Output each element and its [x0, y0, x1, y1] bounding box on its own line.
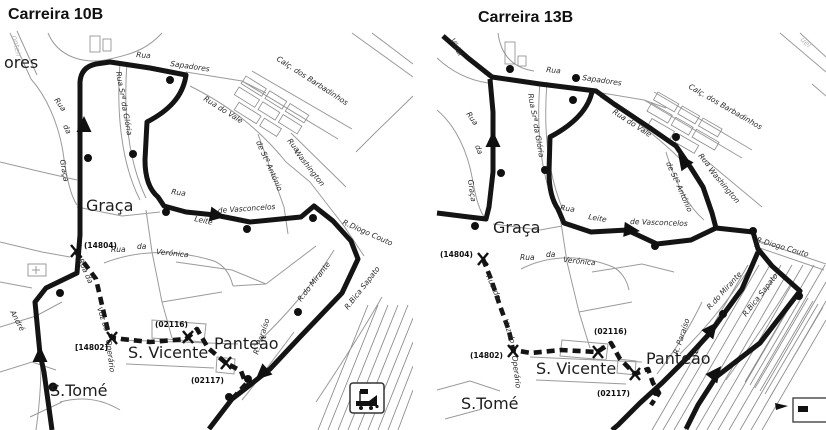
stop-dot [162, 208, 170, 216]
area-label-svicente: S. Vicente [536, 359, 616, 378]
street-label: Rua Srª da Glória [526, 93, 546, 159]
street-label: Rua [171, 187, 187, 198]
street-label: Rua [520, 253, 535, 262]
street-label: Calç. dos Barbadinhos [275, 54, 350, 107]
stop-dot [749, 227, 757, 235]
street-network [0, 31, 413, 430]
street-labels: Rua Sapadores Calç. dos Barbadinhos Rua … [8, 35, 395, 374]
tram-icon [350, 383, 384, 413]
street-label: de Stº António [254, 139, 284, 193]
street-label: Rua [136, 50, 152, 60]
arrow-up-icon [33, 346, 48, 362]
street-label: Graça [58, 159, 71, 183]
stop-code: (14804) [440, 250, 473, 259]
street-label: da [137, 242, 147, 251]
area-labels: Graça S. Vicente Panteão S.Tomé [461, 218, 711, 413]
street-label: Calç. dos Barbadinhos [687, 82, 764, 132]
street-label: de Vasconcelos [630, 217, 688, 228]
area-label-stome: S.Tomé [50, 381, 108, 400]
street-label: Rua da [484, 273, 503, 301]
stop-dot [56, 289, 64, 297]
stop-dot [84, 154, 92, 162]
stop-dot [569, 96, 577, 104]
street-label: de Vasconcelos [218, 202, 276, 215]
stop-dot [572, 74, 580, 82]
street-label: Operário [510, 355, 523, 389]
street-label: Rua [464, 110, 480, 127]
area-label-graca: Graça [86, 196, 133, 215]
stop-code: (02116) [594, 327, 627, 336]
stop-dot [166, 76, 174, 84]
area-label-svicente: S. Vicente [128, 343, 208, 362]
map-panel-13b: Vidal Rua Sapadores Calç. dos Barbadinho… [413, 0, 826, 430]
street-label: Leite [588, 212, 608, 224]
stop-dot [243, 225, 251, 233]
area-label-edge: ores [4, 53, 38, 72]
tram-icon-partial [775, 398, 826, 422]
area-label-panteao: Panteão [646, 349, 711, 368]
street-label: R.do Mirante [295, 260, 332, 304]
stop-code: [14802] [75, 343, 108, 352]
stop-code: (14802) [470, 351, 503, 360]
street-label: Graça [466, 179, 478, 203]
barbadinhos-blocks [227, 76, 308, 145]
stop-dot [309, 214, 317, 222]
street-label: Voz do [501, 318, 517, 345]
street-label: da [61, 123, 73, 136]
arrow-up-icon [486, 131, 501, 147]
area-label-panteao: Panteão [214, 334, 279, 353]
stop-code: (02117) [597, 389, 630, 398]
street-label: Verónica [156, 247, 190, 259]
bus-route-maps-page: Carreira 10B Carreira 13B [0, 0, 826, 430]
street-label: R.Bica Sapato [342, 264, 381, 311]
area-label-graca: Graça [493, 218, 540, 237]
stop-code: (02116) [155, 320, 188, 329]
street-label: Rua do Vale [202, 94, 245, 125]
street-label: da [546, 250, 556, 259]
street-labels: Vidal Rua Sapadores Calç. dos Barbadinho… [448, 35, 813, 389]
stop-dot [225, 393, 233, 401]
street-label: Rua [696, 152, 713, 169]
street-label: Rua [52, 96, 68, 113]
stop-dot [719, 310, 727, 318]
route-13b-graca-loop [437, 79, 493, 219]
street-label: da [473, 144, 485, 156]
stop-dot [651, 242, 659, 250]
area-label-stome: S.Tomé [461, 394, 519, 413]
street-label: Sapadores [582, 73, 623, 87]
stop-dot [471, 222, 479, 230]
stop-dot [497, 169, 505, 177]
stop-dot [652, 388, 660, 396]
street-label: Rua Srª da Glória [114, 71, 134, 137]
stop-code: (14804) [84, 241, 117, 250]
street-label: Rua [546, 65, 562, 76]
street-label: R.Diogo Couto [341, 218, 394, 248]
map-panel-10b: Rua Sapadores Calç. dos Barbadinhos Rua … [0, 0, 413, 430]
stop-code: (02117) [191, 376, 224, 385]
stop-dot [795, 292, 803, 300]
stop-dot [672, 133, 680, 141]
stop-dot [294, 308, 302, 316]
stop-dot [129, 150, 137, 158]
x-marker-icon [593, 346, 603, 358]
stop-dot [506, 65, 514, 73]
stop-dot [541, 166, 549, 174]
street-label: André [8, 308, 27, 333]
street-label: Voz do [95, 306, 111, 333]
street-label: uel [799, 35, 814, 50]
stop-dot [244, 375, 252, 383]
